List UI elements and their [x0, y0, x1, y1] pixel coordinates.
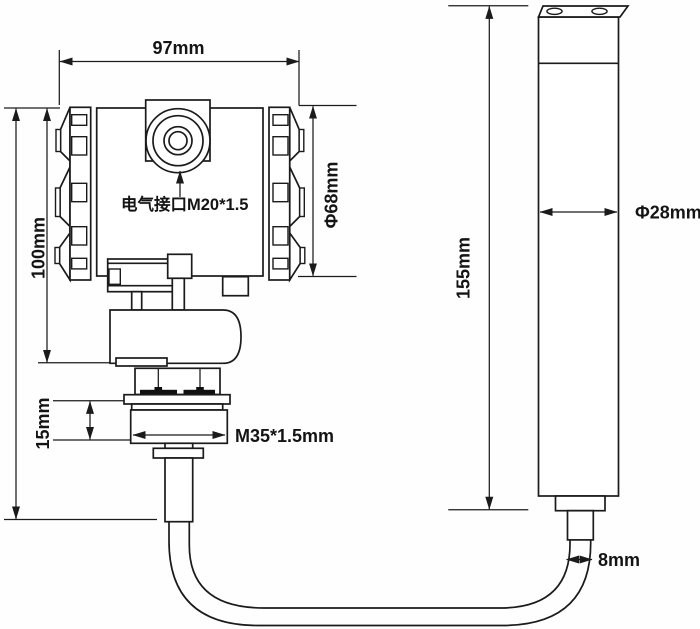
collar [153, 448, 203, 458]
right-cap-tab [299, 130, 304, 152]
flange-plate [124, 395, 230, 404]
transmitter-head [55, 100, 305, 522]
center-post [172, 278, 184, 310]
right-cap-rib [273, 137, 288, 155]
conduit-ring-inner [169, 132, 187, 150]
capsule-foot-bar [116, 358, 167, 366]
probe-step [556, 496, 606, 511]
bracket-slot [109, 269, 120, 284]
probe-body [539, 17, 619, 496]
left-cap-rib [72, 137, 87, 155]
right-cap-tab [300, 248, 305, 264]
bracket-block [168, 254, 192, 278]
gasket-right [184, 390, 216, 395]
dim-width-label: 97mm [152, 38, 204, 58]
dim-housing-diameter-label: Φ68mm [322, 162, 342, 229]
left-cap-tab [56, 130, 61, 152]
right-cap-tab [300, 188, 305, 217]
dim-cable-diameter: 8mm [567, 550, 641, 570]
cable-outer-line [169, 522, 591, 626]
dim-height-label: 100mm [29, 217, 49, 279]
drawing-canvas: 97mm 100mm Φ68mm 电气接口M20*1.5 15mm M35*1.… [0, 0, 700, 629]
right-cap-rib [273, 227, 288, 245]
dim-probe-diameter-label: Φ28mm [635, 203, 700, 223]
bolt-adapter [135, 368, 220, 394]
sensor-probe [539, 6, 629, 540]
bolt-tip [155, 387, 163, 390]
process-capsule [110, 310, 241, 363]
support-post [132, 292, 142, 310]
left-end-cap [55, 107, 91, 280]
right-cap-rib [273, 183, 288, 201]
technical-drawing: 97mm 100mm Φ68mm 电气接口M20*1.5 15mm M35*1.… [0, 0, 700, 629]
dim-thread-spec-label: M35*1.5mm [235, 426, 334, 446]
bolt-tip [196, 387, 204, 390]
flange-neck [132, 404, 223, 410]
electrical-conduit [146, 100, 210, 173]
right-step-block [223, 277, 249, 296]
left-cap-rib [72, 258, 87, 269]
left-cap-rib [72, 115, 87, 126]
dim-width-97: 97mm [59, 38, 299, 106]
dim-thread-height-label: 15mm [33, 397, 53, 449]
left-cap-tab [56, 188, 61, 217]
dim-thread-height: 15mm [33, 397, 131, 449]
dim-probe-length-label: 155mm [454, 237, 474, 299]
thread-nut [131, 410, 228, 443]
probe-top-hole [592, 8, 607, 14]
probe-neck [568, 511, 594, 540]
electrical-port-label: 电气接口M20*1.5 [121, 194, 248, 214]
dim-housing-diameter: Φ68mm [298, 106, 357, 277]
right-cap-rib [273, 115, 288, 126]
gasket-left [140, 390, 177, 395]
cable-inner-line [189, 522, 570, 608]
probe-top-hole [547, 8, 562, 14]
left-cap-rib [72, 183, 87, 201]
right-cap-rib [273, 258, 288, 269]
dim-cable-diameter-label: 8mm [598, 550, 640, 570]
dim-probe-length: 155mm [448, 6, 528, 510]
cable [169, 522, 591, 626]
cable-stem [165, 458, 193, 522]
left-cap-rib [72, 227, 87, 245]
left-cap-tab [55, 248, 60, 264]
thread-fitting [124, 395, 230, 522]
right-end-cap [269, 107, 305, 280]
